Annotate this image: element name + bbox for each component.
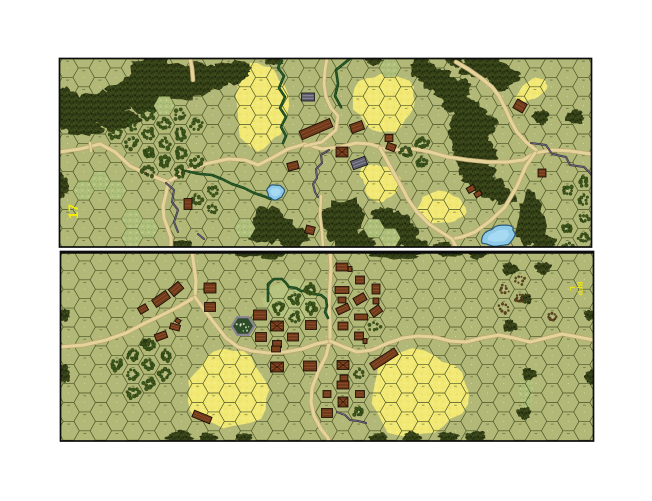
svg-text:BFP: BFP — [576, 282, 583, 296]
svg-text:L: L — [568, 286, 575, 291]
svg-text:17: 17 — [66, 204, 81, 219]
